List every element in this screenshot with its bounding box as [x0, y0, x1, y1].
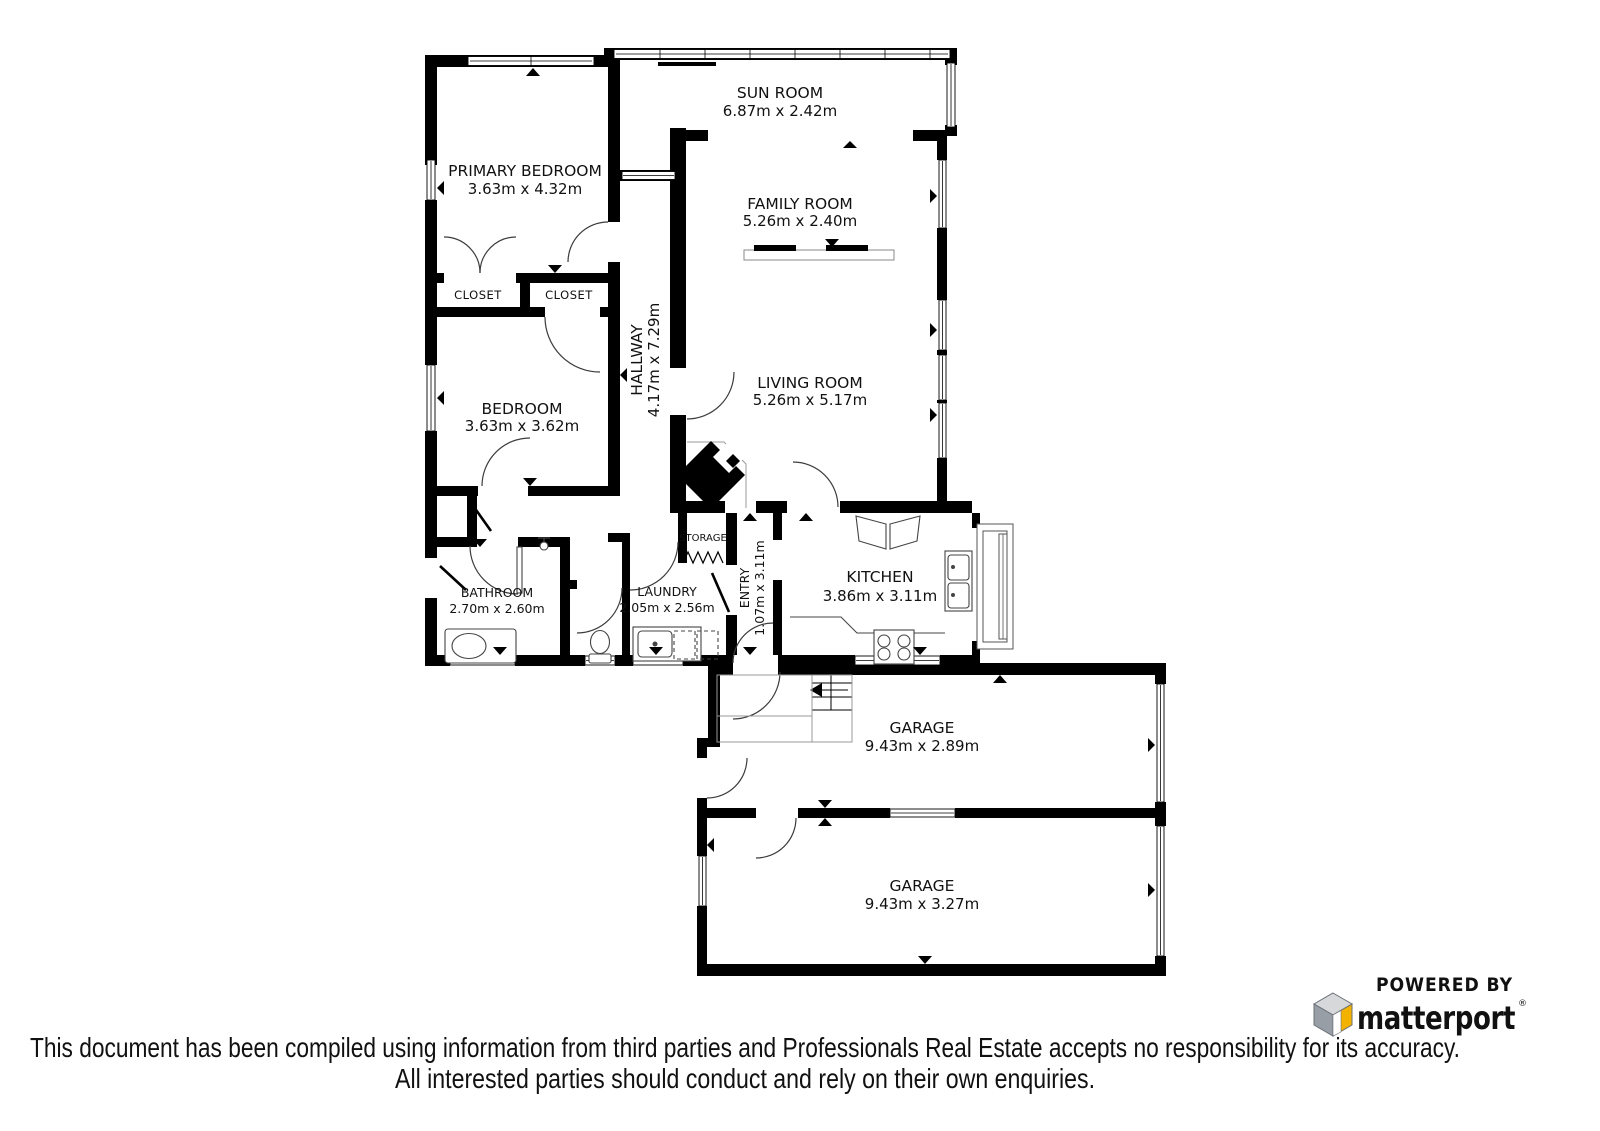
room-label-bathroom: BATHROOM 2.70m x 2.60m	[449, 585, 544, 616]
room-label-entry: ENTRY 1.07m x 3.11m	[737, 540, 767, 635]
room-name: CLOSET	[545, 288, 593, 302]
room-dims: 9.43m x 2.89m	[865, 737, 979, 755]
room-label-laundry: LAUNDRY 2.05m x 2.56m	[619, 584, 714, 615]
room-label-closet-left: CLOSET	[454, 288, 502, 302]
room-label-bedroom: BEDROOM 3.63m x 3.62m	[465, 400, 579, 435]
storage-rod	[683, 552, 723, 563]
room-dims: 9.43m x 3.27m	[865, 895, 979, 913]
room-dims: 3.86m x 3.11m	[823, 587, 937, 605]
room-label-primary-bedroom: PRIMARY BEDROOM 3.63m x 4.32m	[448, 162, 602, 198]
room-dims: 1.07m x 3.11m	[752, 540, 767, 635]
room-dims: 3.63m x 3.62m	[465, 417, 579, 435]
disclaimer: This document has been compiled using in…	[30, 1032, 1460, 1094]
room-name: BEDROOM	[482, 400, 563, 418]
room-dims: 3.63m x 4.32m	[468, 180, 582, 198]
room-dims: 6.87m x 2.42m	[723, 102, 837, 120]
room-label-sun-room: SUN ROOM 6.87m x 2.42m	[723, 84, 837, 120]
room-label-kitchen: KITCHEN 3.86m x 3.11m	[823, 568, 937, 605]
floorplan-document: SUN ROOM 6.87m x 2.42m PRIMARY BEDROOM 3…	[0, 0, 1600, 1131]
room-name: CLOSET	[454, 288, 502, 302]
room-label-living-room: LIVING ROOM 5.26m x 5.17m	[753, 374, 867, 409]
room-name: GARAGE	[890, 877, 955, 895]
room-label-storage: STORAGE	[679, 533, 727, 544]
room-name: STORAGE	[679, 533, 727, 544]
room-name: HALLWAY	[628, 324, 646, 396]
powered-by-text: POWERED BY	[1376, 974, 1513, 996]
room-label-family-room: FAMILY ROOM 5.26m x 2.40m	[743, 195, 857, 230]
matterport-logo: POWERED BY matterport ®	[1314, 974, 1527, 1037]
fireplace-icon	[677, 441, 746, 509]
room-name: KITCHEN	[846, 568, 913, 586]
registered-mark: ®	[1518, 999, 1527, 1009]
room-name: BATHROOM	[461, 585, 533, 600]
room-dims: 2.05m x 2.56m	[619, 600, 714, 615]
room-label-closet-right: CLOSET	[545, 288, 593, 302]
disclaimer-line-1: This document has been compiled using in…	[30, 1032, 1460, 1063]
disclaimer-line-2: All interested parties should conduct an…	[395, 1063, 1095, 1094]
kitchen-bay-window	[977, 524, 1013, 649]
room-name: ENTRY	[737, 567, 752, 608]
room-dims: 5.26m x 2.40m	[743, 212, 857, 230]
floorplan-canvas: SUN ROOM 6.87m x 2.42m PRIMARY BEDROOM 3…	[0, 0, 1600, 1131]
room-name: PRIMARY BEDROOM	[448, 162, 602, 180]
matterport-cube-icon	[1314, 993, 1352, 1036]
room-dims: 5.26m x 5.17m	[753, 391, 867, 409]
room-dims: 4.17m x 7.29m	[645, 303, 663, 417]
sliding-doors	[744, 245, 894, 260]
room-name: LIVING ROOM	[757, 374, 862, 392]
room-dims: 2.70m x 2.60m	[449, 601, 544, 616]
porch-outline	[717, 675, 852, 742]
room-label-hallway: HALLWAY 4.17m x 7.29m	[628, 303, 663, 417]
room-name: LAUNDRY	[637, 584, 697, 599]
room-name: FAMILY ROOM	[747, 195, 853, 213]
room-name: SUN ROOM	[737, 84, 823, 102]
room-label-garage-lower: GARAGE 9.43m x 3.27m	[865, 877, 979, 913]
room-name: GARAGE	[890, 719, 955, 737]
room-label-garage-upper: GARAGE 9.43m x 2.89m	[865, 719, 979, 755]
stairs	[810, 670, 852, 710]
